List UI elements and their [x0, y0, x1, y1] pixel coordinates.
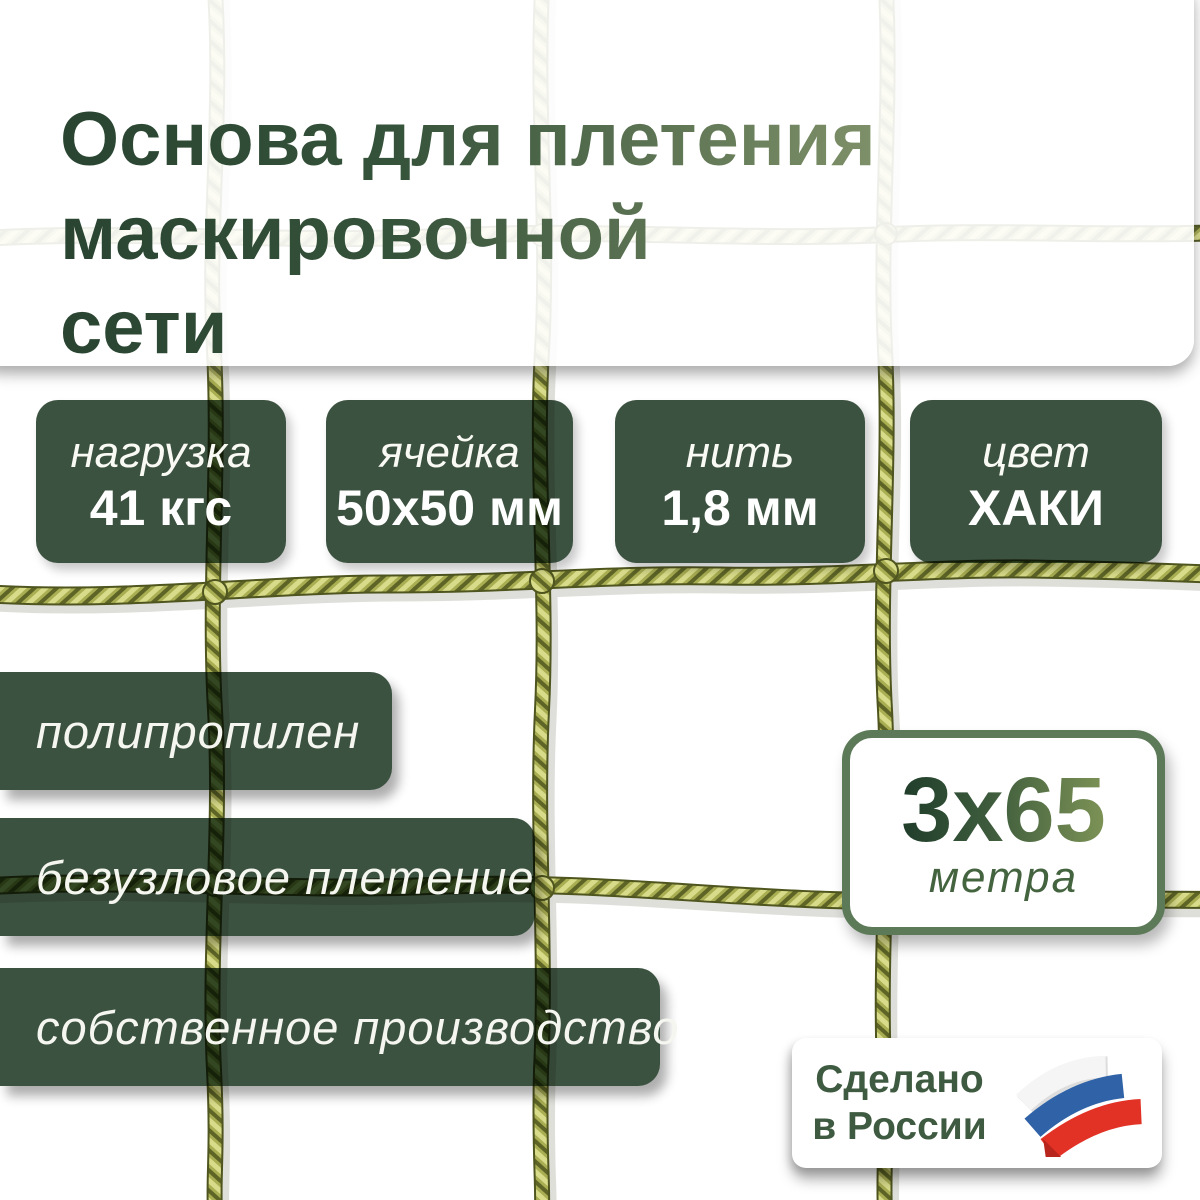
spec-value: 50x50 мм: [336, 479, 563, 537]
size-value: 3x65: [901, 764, 1106, 856]
spec-badge-load: нагрузка 41 кгс: [36, 400, 286, 563]
feature-label: собственное производство: [0, 1000, 679, 1055]
size-card: 3x65 метра: [842, 730, 1165, 935]
russian-flag-icon: [1009, 1049, 1149, 1157]
spec-label: нагрузка: [70, 427, 251, 479]
page-title: Основа для плетения маскировочной сети: [60, 93, 890, 375]
size-unit: метра: [929, 854, 1078, 902]
spec-value: 1,8 мм: [661, 479, 818, 537]
made-in-russia-label: Сделано в России: [792, 1056, 1007, 1150]
spec-label: цвет: [982, 427, 1090, 479]
spec-label: ячейка: [379, 427, 519, 479]
made-in-russia-badge: Сделано в России: [792, 1038, 1162, 1168]
spec-label: нить: [686, 427, 794, 479]
spec-badge-color: цвет ХАКИ: [910, 400, 1162, 563]
title-line-2: маскировочной: [60, 187, 890, 281]
spec-badge-thread: нить 1,8 мм: [615, 400, 865, 563]
feature-bar-material: полипропилен: [0, 672, 392, 790]
spec-badge-mesh: ячейка 50x50 мм: [326, 400, 573, 563]
spec-value: 41 кгс: [90, 479, 233, 537]
product-image: нагрузка 41 кгс ячейка 50x50 мм нить 1,8…: [0, 0, 1200, 1200]
feature-label: полипропилен: [0, 704, 360, 759]
title-line-1: Основа для плетения: [60, 93, 890, 187]
title-line-3: сети: [60, 281, 890, 375]
feature-label: безузловое плетение: [0, 850, 535, 905]
spec-value: ХАКИ: [968, 479, 1104, 537]
feature-bar-weave: безузловое плетение: [0, 818, 535, 936]
feature-bar-production: собственное производство: [0, 968, 660, 1086]
